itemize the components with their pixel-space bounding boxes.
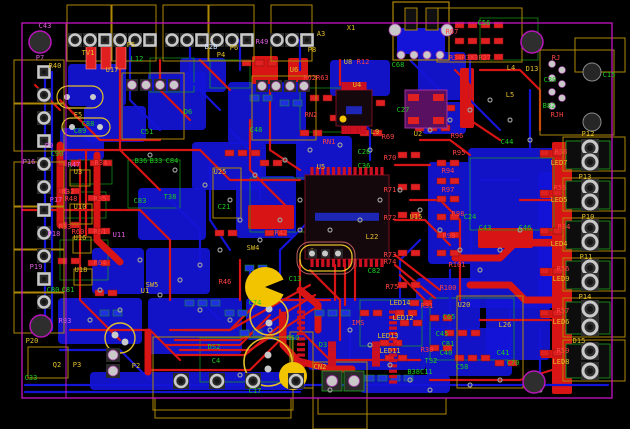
- pad-hole: [587, 199, 593, 205]
- component-label[interactable]: P10: [582, 213, 595, 221]
- usb-pin-pad: [436, 51, 444, 59]
- smd-component[interactable]: [378, 375, 387, 381]
- smd-component[interactable]: [468, 38, 477, 44]
- component-label[interactable]: C90: [51, 150, 64, 158]
- component-label[interactable]: B38C11: [407, 368, 432, 376]
- smd-component[interactable]: [398, 355, 407, 361]
- component-label[interactable]: C83: [134, 197, 147, 205]
- to92-pad: [122, 339, 129, 346]
- component-label[interactable]: R34R3X3R27: [449, 54, 491, 62]
- component-label[interactable]: LED8: [553, 358, 570, 366]
- osc-pad-ring: [335, 251, 341, 257]
- smd-component[interactable]: [411, 184, 420, 190]
- component-label[interactable]: R57: [557, 307, 570, 315]
- smd-component[interactable]: [437, 160, 446, 166]
- component-label[interactable]: TV1: [82, 49, 95, 57]
- component-label[interactable]: P16: [23, 158, 36, 166]
- smd-component[interactable]: [455, 38, 464, 44]
- component-label[interactable]: R35: [94, 195, 107, 203]
- component-label[interactable]: R94: [442, 167, 455, 175]
- smd-component[interactable]: [341, 310, 350, 316]
- component-label[interactable]: P12: [582, 130, 595, 138]
- smd-component[interactable]: [413, 320, 422, 326]
- component-label[interactable]: LED14: [389, 299, 410, 307]
- component-label[interactable]: P3: [73, 361, 81, 369]
- component-label[interactable]: C80: [47, 286, 60, 294]
- component-label[interactable]: LED13: [377, 332, 398, 340]
- component-label[interactable]: R75: [386, 283, 399, 291]
- smd-component[interactable]: [458, 330, 467, 336]
- component-label[interactable]: R99: [443, 232, 456, 240]
- smd-component[interactable]: [495, 360, 504, 366]
- pad-hole: [178, 378, 183, 383]
- component-label[interactable]: R46: [219, 278, 232, 286]
- pad-hole: [305, 38, 309, 42]
- component-label[interactable]: Q2: [53, 361, 61, 369]
- component-label[interactable]: C81: [442, 340, 455, 348]
- smd-component[interactable]: [540, 190, 549, 196]
- qfp-pin: [389, 370, 397, 373]
- component-label[interactable]: R98: [452, 210, 465, 218]
- qfp-pin: [297, 321, 305, 324]
- smd-component[interactable]: [540, 350, 549, 356]
- smd-component[interactable]: [238, 150, 247, 156]
- mounting-hole[interactable]: [29, 31, 51, 53]
- mounting-hole[interactable]: [521, 31, 543, 53]
- smd-component[interactable]: [398, 212, 407, 218]
- component-label[interactable]: R70: [384, 154, 397, 162]
- smd-component[interactable]: [471, 330, 480, 336]
- smd-component[interactable]: [215, 230, 224, 236]
- component-label[interactable]: U17: [106, 66, 119, 74]
- component-label[interactable]: LED6: [553, 318, 570, 326]
- pad-hole: [587, 225, 593, 231]
- component-label[interactable]: U3: [74, 168, 82, 176]
- pad-hole: [118, 38, 122, 42]
- smd-component[interactable]: [437, 178, 446, 184]
- component-label[interactable]: R54: [558, 223, 571, 231]
- component-label[interactable]: P4: [217, 51, 225, 59]
- component-label[interactable]: X1: [347, 24, 355, 32]
- smd-component[interactable]: [245, 265, 254, 271]
- component-label[interactable]: R40: [49, 62, 62, 70]
- smd-component[interactable]: [450, 196, 459, 202]
- component-label[interactable]: D6: [184, 108, 192, 116]
- qfp-pin: [354, 126, 357, 134]
- component-label[interactable]: R62R63: [303, 74, 328, 82]
- smd-component[interactable]: [376, 100, 385, 106]
- pad-hole: [587, 159, 593, 165]
- smd-component[interactable]: [360, 310, 369, 316]
- component-label[interactable]: P5: [127, 41, 135, 49]
- smd-component[interactable]: [437, 214, 446, 220]
- component-label[interactable]: C48: [250, 126, 263, 134]
- smd-component[interactable]: [468, 355, 477, 361]
- component-label[interactable]: R61: [94, 228, 107, 236]
- pad-hole: [293, 378, 298, 383]
- smd-component[interactable]: [437, 196, 446, 202]
- component-label[interactable]: C56: [478, 19, 491, 27]
- qfp-pin: [297, 343, 305, 346]
- smd-component[interactable]: [238, 310, 247, 316]
- smd-component[interactable]: [430, 315, 439, 321]
- component-label[interactable]: U2: [414, 130, 422, 138]
- component-label[interactable]: LED5: [551, 196, 568, 204]
- component-label[interactable]: U5: [317, 163, 325, 171]
- qfp-pin: [357, 126, 360, 134]
- component-label[interactable]: R34: [95, 159, 108, 167]
- smd-component[interactable]: [411, 152, 420, 158]
- component-label[interactable]: U18: [75, 266, 88, 274]
- smd-component[interactable]: [240, 330, 249, 336]
- component-label[interactable]: U25: [214, 168, 227, 176]
- module-pad: [433, 117, 444, 124]
- smd-component[interactable]: [108, 290, 117, 296]
- component-label[interactable]: LED12: [392, 314, 413, 322]
- qfp-pin: [363, 82, 366, 90]
- component-label[interactable]: R58: [555, 148, 568, 156]
- component-label[interactable]: C4: [212, 357, 220, 365]
- component-label[interactable]: RN2: [305, 111, 318, 119]
- smd-component[interactable]: [365, 375, 374, 381]
- component-label[interactable]: R42: [275, 229, 288, 237]
- pcb-editor-canvas[interactable]: C43P7R40TV1U17P5P4B2BP6R49A3X1P8U6R62R63…: [0, 0, 630, 429]
- smd-component[interactable]: [398, 282, 407, 288]
- component-label[interactable]: R33: [59, 223, 72, 231]
- component-label[interactable]: RJ: [552, 54, 560, 62]
- component-label[interactable]: C26: [358, 148, 371, 156]
- qfp-pin: [327, 259, 330, 267]
- component-label[interactable]: R95: [453, 149, 466, 157]
- component-label[interactable]: U10: [74, 203, 87, 211]
- qfp-pin: [328, 357, 336, 360]
- component-label[interactable]: C15: [603, 71, 616, 79]
- smd-component[interactable]: [540, 310, 549, 316]
- cn2-pad-ring: [327, 376, 338, 387]
- pad-hole: [214, 378, 219, 383]
- component-label[interactable]: F5: [74, 111, 82, 119]
- component-label[interactable]: C70: [507, 359, 520, 367]
- component-label[interactable]: L22: [366, 233, 379, 241]
- component-label[interactable]: B82: [543, 102, 556, 110]
- component-label[interactable]: L4: [507, 64, 515, 72]
- smd-component[interactable]: [211, 300, 220, 306]
- smd-component[interactable]: [265, 230, 274, 236]
- component-label[interactable]: DS2: [208, 343, 221, 351]
- qfp-pin: [345, 126, 348, 134]
- component-label[interactable]: U1: [141, 287, 149, 295]
- qfp-pin: [328, 348, 336, 351]
- pad-hole: [230, 38, 234, 42]
- component-label[interactable]: C17: [249, 387, 262, 395]
- component-label[interactable]: U4: [353, 81, 361, 89]
- smd-component[interactable]: [373, 310, 382, 316]
- smd-component[interactable]: [328, 310, 337, 316]
- smd-component[interactable]: [398, 184, 407, 190]
- pad-hole: [587, 265, 593, 271]
- component-label[interactable]: C43: [39, 22, 52, 30]
- qfp-pin: [343, 259, 346, 267]
- component-label[interactable]: R101: [449, 261, 466, 269]
- smd-component[interactable]: [313, 130, 322, 136]
- component-label[interactable]: R30: [421, 346, 434, 354]
- component-label[interactable]: D15: [573, 337, 586, 345]
- smd-component[interactable]: [100, 310, 109, 316]
- component-label[interactable]: C33: [25, 374, 38, 382]
- smd-component[interactable]: [398, 152, 407, 158]
- smd-component[interactable]: [250, 95, 259, 101]
- component-label[interactable]: C68: [392, 61, 405, 69]
- smd-component[interactable]: [185, 300, 194, 306]
- pad-hole: [42, 254, 46, 258]
- mounting-hole[interactable]: [30, 315, 52, 337]
- component-label[interactable]: P17: [50, 196, 63, 204]
- component-label[interactable]: B2B: [205, 43, 218, 51]
- component-label[interactable]: R49: [256, 38, 269, 46]
- component-label[interactable]: IMS: [352, 319, 365, 327]
- qfp-pin: [328, 345, 336, 348]
- component-label[interactable]: U6: [290, 66, 298, 74]
- smd-component[interactable]: [260, 160, 269, 166]
- component-label[interactable]: RN1: [323, 138, 336, 146]
- component-label[interactable]: LED9: [553, 275, 570, 283]
- smd-component[interactable]: [225, 150, 234, 156]
- smd-component[interactable]: [540, 268, 549, 274]
- component-label[interactable]: LED7: [551, 159, 568, 167]
- component-label[interactable]: C36: [358, 162, 371, 170]
- component-label[interactable]: C41: [497, 349, 510, 357]
- component-label[interactable]: L12: [131, 55, 144, 63]
- component-label[interactable]: R12: [357, 58, 370, 66]
- component-label[interactable]: C58: [456, 363, 469, 371]
- pad-hole: [88, 38, 92, 42]
- component-label[interactable]: C44: [501, 138, 514, 146]
- component-label[interactable]: P20: [26, 337, 39, 345]
- jack-pad: [559, 67, 566, 74]
- dip-pad-ring: [286, 82, 295, 91]
- pad-hole: [250, 378, 255, 383]
- smd-component[interactable]: [273, 160, 282, 166]
- component-label[interactable]: R56: [557, 265, 570, 273]
- component-label[interactable]: R96: [451, 132, 464, 140]
- component-label[interactable]: TS2: [425, 357, 438, 365]
- smd-component[interactable]: [113, 310, 122, 316]
- smd-component[interactable]: [310, 95, 319, 101]
- component-label[interactable]: C65: [443, 313, 456, 321]
- qfp-pin: [297, 327, 305, 330]
- smd-component[interactable]: [95, 290, 104, 296]
- smd-component[interactable]: [481, 355, 490, 361]
- dip-pad-ring: [142, 81, 151, 90]
- smd-component[interactable]: [481, 38, 490, 44]
- smd-component[interactable]: [71, 258, 80, 264]
- component-label[interactable]: L26: [499, 321, 512, 329]
- pad-hole: [42, 185, 46, 189]
- qfp-pin: [297, 316, 305, 319]
- component-label[interactable]: C74: [249, 299, 262, 307]
- component-label[interactable]: R93: [59, 317, 72, 325]
- smd-component[interactable]: [540, 150, 549, 156]
- component-label[interactable]: U16: [74, 234, 87, 242]
- component-label[interactable]: C27: [397, 106, 410, 114]
- component-label[interactable]: C30: [544, 76, 557, 84]
- component-label[interactable]: P13: [579, 173, 592, 181]
- component-label[interactable]: CN2: [314, 363, 327, 371]
- module-pad: [408, 94, 419, 101]
- component-label[interactable]: A3: [317, 30, 325, 38]
- osc-pad-ring: [322, 251, 328, 257]
- component-label[interactable]: B36: [135, 157, 148, 165]
- usb-copper: [397, 28, 445, 54]
- qfp-pin: [389, 343, 397, 346]
- smd-component[interactable]: [198, 300, 207, 306]
- smd-component[interactable]: [251, 150, 260, 156]
- smd-component[interactable]: [293, 100, 302, 106]
- qfp-pin: [375, 167, 378, 175]
- component-label[interactable]: SW4: [247, 244, 260, 252]
- smd-component[interactable]: [411, 282, 420, 288]
- pad-hole: [170, 38, 174, 42]
- component-label[interactable]: R71: [384, 186, 397, 194]
- component-label[interactable]: U8: [344, 58, 352, 66]
- component-label[interactable]: P8: [308, 46, 316, 54]
- smd-component[interactable]: [315, 310, 324, 316]
- component-label[interactable]: C82: [368, 267, 381, 275]
- smd-component[interactable]: [450, 178, 459, 184]
- smd-component[interactable]: [255, 60, 264, 66]
- pad-hole: [185, 38, 189, 42]
- smd-component[interactable]: [263, 95, 272, 101]
- component-label[interactable]: U20: [458, 301, 471, 309]
- smd-component[interactable]: [450, 160, 459, 166]
- qfp-pin: [389, 359, 397, 362]
- qfp-pin: [332, 259, 335, 267]
- pad-hole: [42, 208, 46, 212]
- component-label[interactable]: R100: [440, 284, 457, 292]
- component-label[interactable]: P2: [132, 362, 140, 370]
- component-label[interactable]: R48: [65, 195, 78, 203]
- smd-component[interactable]: [280, 100, 289, 106]
- component-label[interactable]: P14: [579, 293, 592, 301]
- pad-hole: [42, 231, 46, 235]
- component-label[interactable]: R55: [554, 184, 567, 192]
- component-label[interactable]: C40: [440, 349, 453, 357]
- board-svg[interactable]: C43P7R40TV1U17P5P4B2BP6R49A3X1P8U6R62R63…: [0, 0, 630, 429]
- component-label[interactable]: P11: [580, 253, 593, 261]
- qfp-pin: [332, 167, 335, 175]
- component-label[interactable]: R59: [557, 347, 570, 355]
- component-label[interactable]: C46: [519, 224, 532, 232]
- qfp-pin: [345, 82, 348, 90]
- component-label[interactable]: R31: [421, 302, 434, 310]
- qfp-pin: [328, 341, 336, 344]
- component-label[interactable]: D3: [319, 341, 327, 349]
- smd-component[interactable]: [540, 228, 549, 234]
- usb-pin-pad: [397, 51, 405, 59]
- component-label[interactable]: C81: [62, 286, 75, 294]
- jack-hole: [583, 113, 601, 131]
- component-label[interactable]: L9: [371, 128, 379, 136]
- component-label[interactable]: L5: [506, 91, 514, 99]
- component-label[interactable]: U15: [410, 213, 423, 221]
- smd-component[interactable]: [455, 355, 464, 361]
- pad-hole: [42, 162, 46, 166]
- component-label[interactable]: B33: [150, 157, 163, 165]
- qfp-pin: [341, 82, 344, 90]
- component-label[interactable]: P9: [45, 142, 53, 150]
- component-label[interactable]: C21: [218, 203, 231, 211]
- component-label[interactable]: P19: [30, 263, 43, 271]
- qfp-pin: [341, 126, 344, 134]
- component-label[interactable]: C43: [479, 224, 492, 232]
- component-label[interactable]: P18: [48, 230, 61, 238]
- pad-hole: [42, 93, 46, 97]
- component-label[interactable]: R69: [382, 133, 395, 141]
- smd-component[interactable]: [494, 54, 503, 60]
- qfp-pin: [328, 363, 336, 366]
- pad-hole: [290, 38, 294, 42]
- component-label[interactable]: R97: [442, 186, 455, 194]
- mounting-hole[interactable]: [523, 371, 545, 393]
- smd-component[interactable]: [225, 310, 234, 316]
- component-label[interactable]: LED11: [379, 347, 400, 355]
- component-label[interactable]: C89: [74, 127, 87, 135]
- pad-hole: [587, 368, 593, 374]
- qfp-pin: [372, 341, 380, 344]
- component-label[interactable]: P6: [230, 44, 238, 52]
- osc-pad-ring: [309, 251, 315, 257]
- usb-shield-pad: [389, 24, 401, 36]
- component-label[interactable]: D13: [526, 65, 539, 73]
- component-label[interactable]: T38: [164, 193, 177, 201]
- qfp-pin: [353, 167, 356, 175]
- component-label[interactable]: R74: [384, 258, 397, 266]
- smd-component[interactable]: [300, 130, 309, 136]
- component-label[interactable]: C24: [464, 213, 477, 221]
- smd-component[interactable]: [380, 340, 389, 346]
- component-label[interactable]: C45: [436, 330, 449, 338]
- smd-component[interactable]: [323, 95, 332, 101]
- copper-zone-bottom: [90, 372, 305, 390]
- qfp-pin: [297, 353, 305, 356]
- pad-hole: [42, 300, 46, 304]
- smd-component[interactable]: [411, 250, 420, 256]
- component-label[interactable]: C50: [287, 334, 300, 342]
- component-label[interactable]: R64: [94, 259, 107, 267]
- qfp-pin: [310, 167, 313, 175]
- component-label[interactable]: P7: [36, 54, 44, 62]
- smd-component[interactable]: [228, 230, 237, 236]
- component-label[interactable]: R67: [446, 28, 459, 36]
- component-label[interactable]: C13: [289, 275, 302, 283]
- qfp-pin: [389, 327, 397, 330]
- component-label[interactable]: C51: [141, 128, 154, 136]
- qfp-pin: [343, 167, 346, 175]
- smd-component[interactable]: [398, 250, 407, 256]
- pad-hole: [42, 70, 46, 74]
- pad-hole: [587, 279, 593, 285]
- pad-hole: [42, 277, 46, 281]
- component-label[interactable]: RJH: [551, 111, 564, 119]
- smd-component[interactable]: [437, 250, 446, 256]
- smd-component[interactable]: [494, 38, 503, 44]
- component-label[interactable]: LED4: [551, 240, 568, 248]
- component-label[interactable]: R72: [384, 214, 397, 222]
- component-label[interactable]: C84: [166, 157, 179, 165]
- pad-hole: [215, 38, 219, 42]
- smd-component[interactable]: [410, 300, 419, 306]
- component-label[interactable]: U11: [113, 231, 126, 239]
